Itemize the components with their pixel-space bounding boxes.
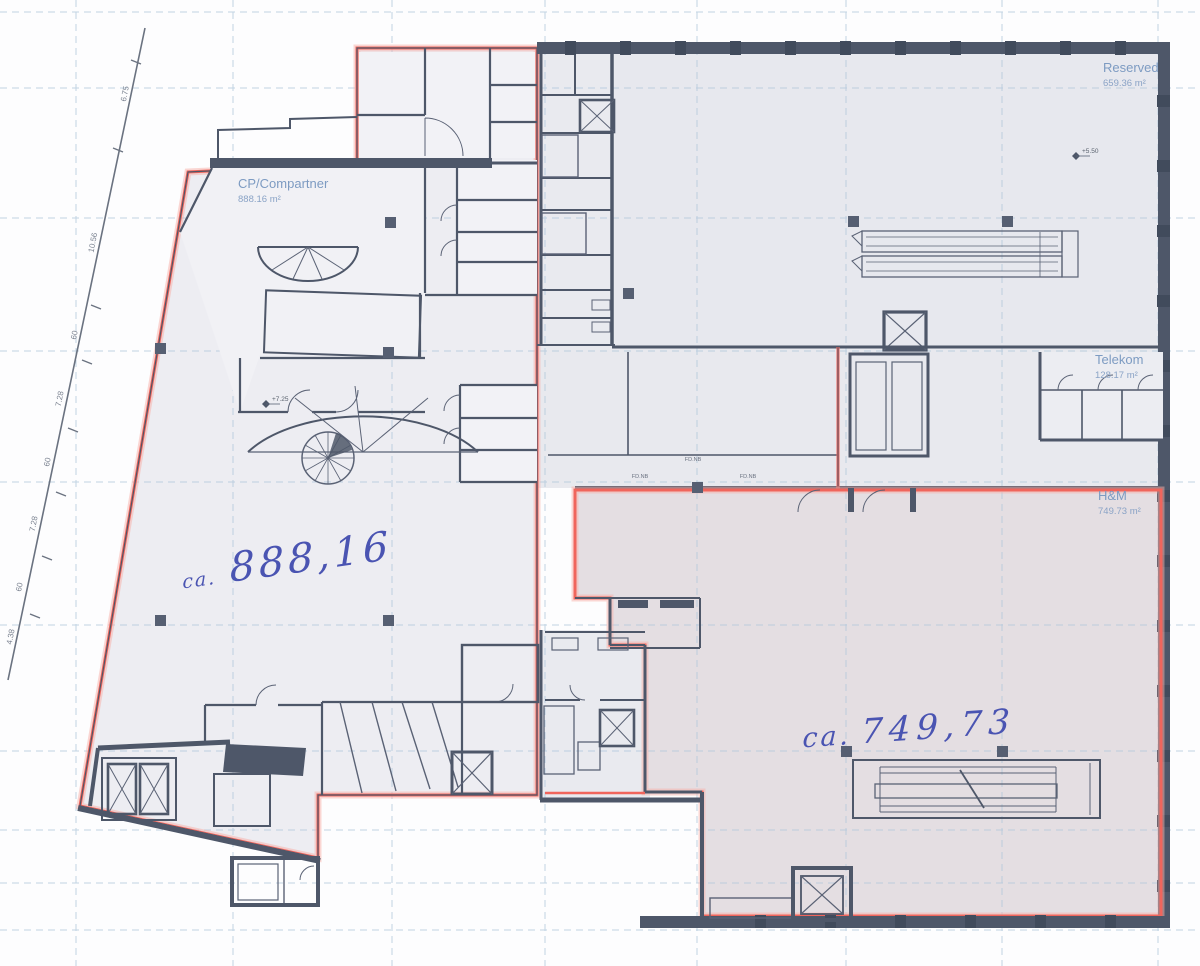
spiral-stair [302, 432, 354, 484]
hm-label: H&M [1098, 488, 1127, 503]
wall-label: FD.NB [632, 474, 649, 480]
top-wall [537, 42, 1168, 54]
dim-label: 7.28 [54, 390, 66, 408]
dim-label: 10.56 [87, 231, 100, 253]
dim-label: 7.28 [28, 515, 40, 533]
hm-floor-fill [575, 490, 1161, 916]
reserved-label: Reserved [1103, 60, 1159, 75]
wall-label: FD.NB [685, 457, 702, 463]
dim-label: 60 [14, 581, 25, 592]
telekom-area-label: 128.17 m² [1095, 370, 1138, 381]
reserved-area-label: 659.36 m² [1103, 78, 1146, 89]
cp-room-fill [359, 52, 535, 158]
dim-label: 6.75 [119, 85, 131, 103]
cp-room-fill [460, 385, 537, 482]
dim-label: 4.38 [5, 628, 17, 646]
telekom-room: Telekom 128.17 m² [1040, 352, 1163, 440]
telekom-label: Telekom [1095, 352, 1143, 367]
cp-top-wall [210, 158, 492, 168]
cp-area-label: 888.16 m² [238, 194, 281, 205]
cp-label: CP/Compartner [238, 176, 329, 191]
floor-plan-svg: 6.75 10.56 60 7.28 60 7.28 60 4.38 [0, 0, 1200, 966]
scanned-floor-plan-page: 6.75 10.56 60 7.28 60 7.28 60 4.38 [0, 0, 1200, 966]
canopy-outline [218, 117, 357, 158]
dim-label: 60 [69, 329, 80, 340]
ramp-wall [223, 744, 306, 776]
cp-room-fill [457, 160, 537, 295]
level-marker-label: +5.50 [1082, 148, 1099, 155]
door-arc [300, 866, 314, 880]
wall-label: FD.NB [740, 474, 757, 480]
dim-label: 60 [42, 456, 53, 467]
staircase [238, 864, 278, 900]
cp-lower-extension [232, 858, 318, 905]
hm-area-label: 749.73 m² [1098, 506, 1141, 517]
level-marker-label: +7.25 [272, 396, 289, 403]
